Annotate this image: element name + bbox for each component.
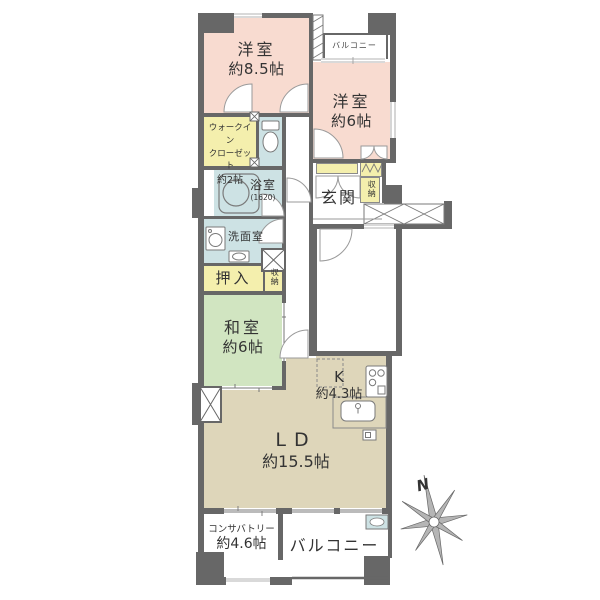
window-ld-balcony-right bbox=[340, 508, 382, 514]
balcony-bottom-name: バルコニー bbox=[283, 536, 386, 556]
bedroom2-name: 洋室 bbox=[313, 92, 390, 112]
wic-line1: ウォークイン bbox=[205, 122, 255, 148]
balcony-sink-icon bbox=[366, 515, 388, 529]
common-corridor-hatch bbox=[364, 204, 444, 224]
meter-box bbox=[363, 430, 376, 440]
conservatory-name: コンサバトリー bbox=[205, 524, 278, 536]
bedroom1-name: 洋室 bbox=[204, 40, 309, 60]
ld-name: LD bbox=[234, 428, 358, 452]
bath-size: (1620) bbox=[244, 193, 282, 203]
washroom-name: 洗面室 bbox=[216, 230, 276, 244]
bedroom1-size: 約8.5帖 bbox=[204, 60, 309, 79]
balcony-top-name: バルコニー bbox=[321, 41, 388, 51]
washitsu-size: 約6帖 bbox=[204, 338, 282, 357]
label-balcony-top: バルコニー bbox=[321, 41, 388, 51]
shaft-ld-left bbox=[200, 387, 221, 422]
label-entrance: 玄関 bbox=[313, 188, 365, 208]
window-bedroom2-right bbox=[390, 102, 396, 138]
bedroom2-size: 約6帖 bbox=[313, 112, 390, 131]
storage-hall-name: 収納 bbox=[269, 268, 279, 286]
door-bedroom2 bbox=[314, 129, 343, 158]
plan-decor-layer bbox=[0, 0, 600, 600]
toilet-icon bbox=[262, 121, 279, 152]
door-bedroom1-right bbox=[280, 84, 308, 112]
wic-line2: クローゼット bbox=[205, 148, 255, 174]
window-bedroom2-balcony bbox=[321, 57, 385, 64]
label-living-dining: LD 約15.5帖 bbox=[234, 428, 358, 473]
entrance-name: 玄関 bbox=[313, 188, 365, 208]
storage-entrance-name: 収納 bbox=[366, 180, 376, 198]
window-ld-conservatory bbox=[224, 506, 276, 516]
vanity-sink-icon bbox=[229, 251, 249, 262]
door-toilet bbox=[287, 178, 311, 202]
kitchen-size: 約4.3帖 bbox=[308, 387, 370, 404]
column-mark-wic-top bbox=[250, 112, 259, 121]
door-bedroom1-left bbox=[224, 84, 252, 112]
window-ld-balcony-left bbox=[292, 508, 334, 514]
washitsu-name: 和室 bbox=[204, 318, 282, 338]
oshiire-name: 押入 bbox=[204, 269, 263, 288]
label-balcony-bottom: バルコニー bbox=[283, 536, 386, 556]
hatch-strip-top bbox=[313, 15, 323, 60]
label-washroom: 洗面室 bbox=[216, 230, 276, 244]
floor-plan: 洋室 約8.5帖 バルコニー 洋室 約6帖 ウォークイン クローゼット 約2帖 … bbox=[0, 0, 600, 600]
label-bath: 浴室 (1620) bbox=[244, 178, 282, 203]
label-washitsu: 和室 約6帖 bbox=[204, 318, 282, 358]
label-oshiire: 押入 bbox=[204, 269, 263, 288]
window-bedroom1-top bbox=[234, 13, 262, 18]
sink-icon bbox=[341, 401, 375, 421]
entry-door-gap bbox=[364, 224, 394, 229]
label-kitchen: K 約4.3帖 bbox=[308, 368, 370, 404]
ld-size: 約15.5帖 bbox=[234, 452, 358, 472]
door-front bbox=[320, 229, 352, 261]
window-conservatory-bottom bbox=[226, 577, 270, 583]
label-storage-entrance: 収納 bbox=[366, 180, 376, 198]
label-conservatory: コンサバトリー 約4.6帖 bbox=[205, 524, 278, 554]
conservatory-size: 約4.6帖 bbox=[205, 536, 278, 554]
shoe-box-zigzag bbox=[362, 164, 382, 172]
bath-name: 浴室 bbox=[244, 178, 282, 193]
sliding-door-washitsu-bottom bbox=[222, 384, 272, 392]
door-bedroom2-closet-r bbox=[374, 146, 387, 159]
label-bedroom1: 洋室 約8.5帖 bbox=[204, 40, 309, 80]
door-bedroom2-closet-l bbox=[361, 146, 374, 159]
label-bedroom2: 洋室 約6帖 bbox=[313, 92, 390, 132]
kitchen-name: K bbox=[308, 368, 370, 387]
label-storage-hall: 収納 bbox=[269, 268, 279, 286]
